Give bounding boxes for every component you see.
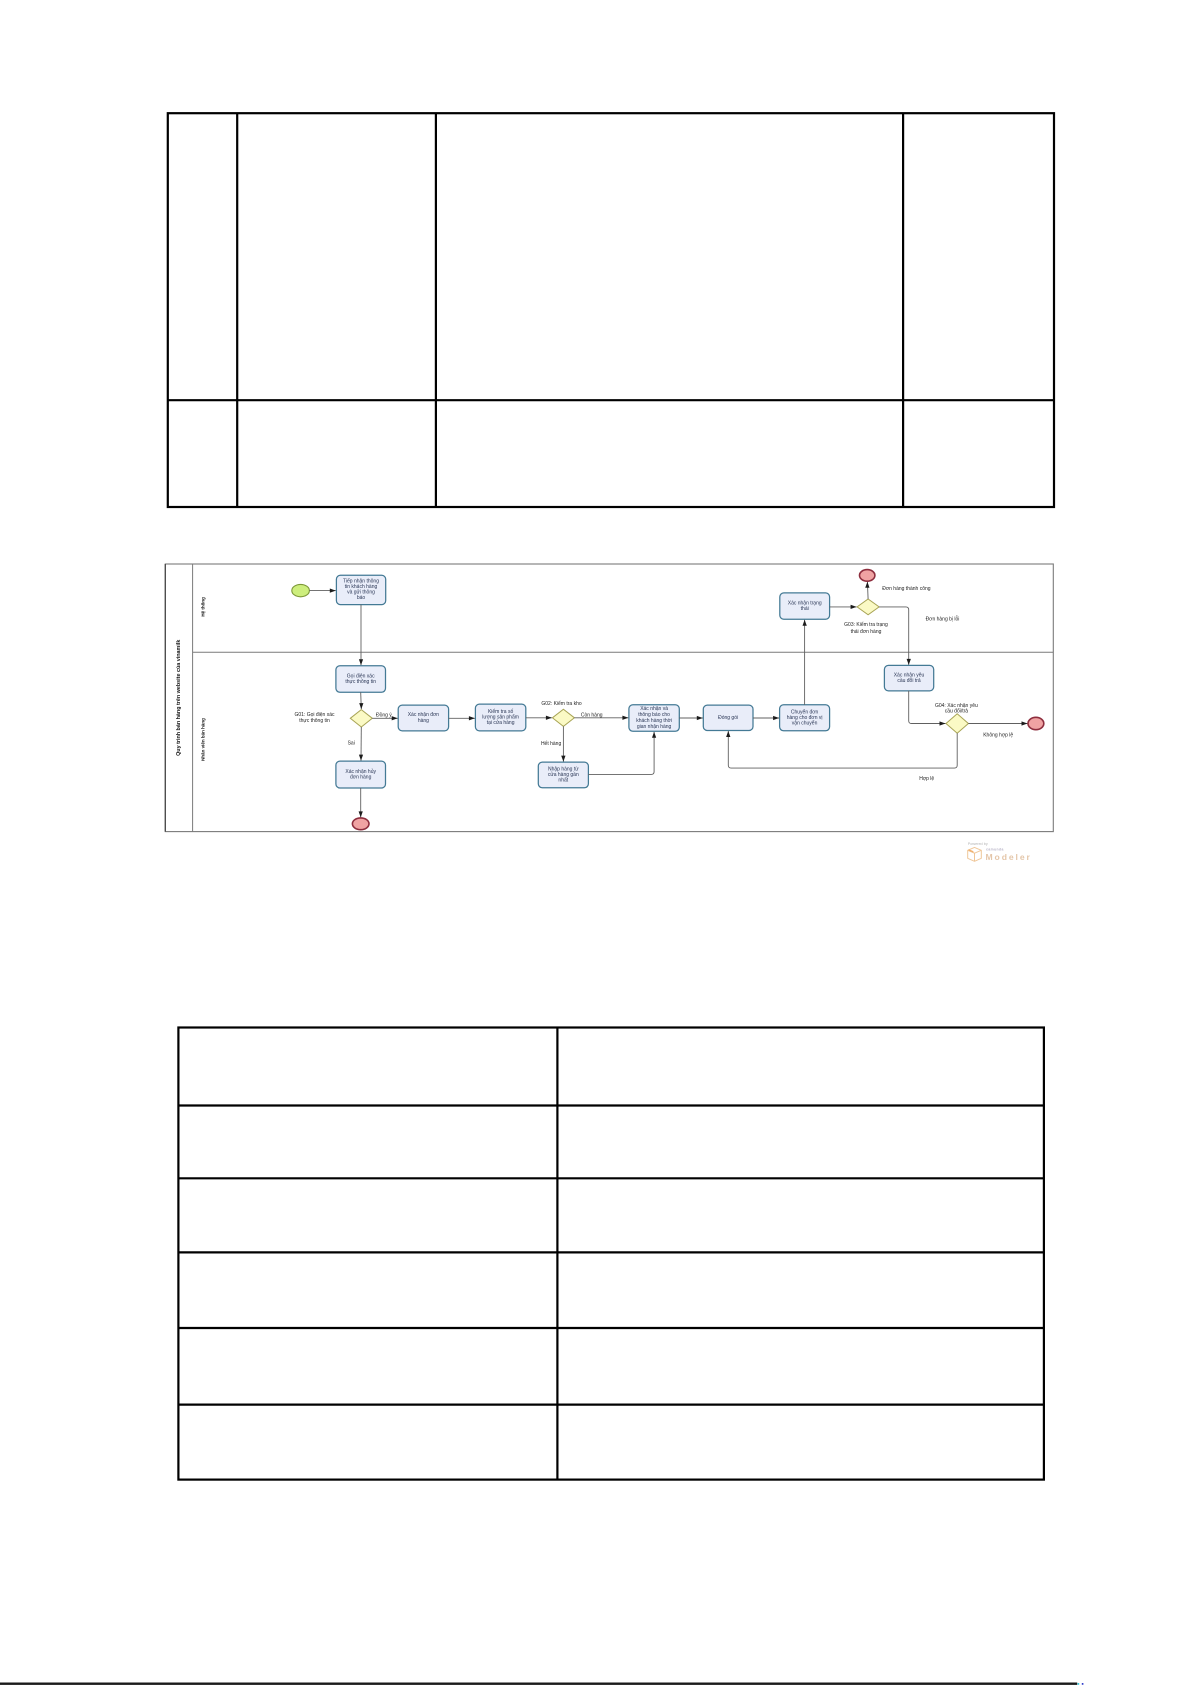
svg-text:Chuyển đơnhàng cho đơn vịvận c: Chuyển đơnhàng cho đơn vịvận chuyển bbox=[787, 708, 823, 726]
svg-text:Đơn hàng thành công: Đơn hàng thành công bbox=[882, 586, 931, 592]
svg-text:G04: Xác nhận yêucầu đổi/trả: G04: Xác nhận yêucầu đổi/trả bbox=[935, 703, 978, 715]
svg-text:Hợp lệ: Hợp lệ bbox=[919, 776, 934, 782]
svg-text:Quy trình bán hàng trên websit: Quy trình bán hàng trên website của vina… bbox=[176, 640, 182, 756]
svg-text:Powered by: Powered by bbox=[968, 842, 988, 846]
svg-text:G02: Kiểm tra kho: G02: Kiểm tra kho bbox=[541, 700, 582, 707]
svg-text:Nhân viên bán hàng: Nhân viên bán hàng bbox=[200, 718, 205, 761]
svg-text:G01: Gọi điện xácthực thông ti: G01: Gọi điện xácthực thông tin bbox=[294, 712, 335, 724]
svg-text:Đóng gói: Đóng gói bbox=[718, 715, 738, 721]
svg-text:Xác nhận yêucầu đổi trả: Xác nhận yêucầu đổi trả bbox=[894, 672, 925, 684]
svg-text:Gọi điện xácthực thông tin: Gọi điện xácthực thông tin bbox=[345, 673, 376, 685]
svg-text:Hệ thống: Hệ thống bbox=[199, 597, 205, 617]
svg-text:Không hợp lệ: Không hợp lệ bbox=[983, 732, 1013, 738]
svg-text:Hết hàng: Hết hàng bbox=[541, 741, 562, 747]
svg-text:Xác nhận vàthông báo chokhách: Xác nhận vàthông báo chokhách hàng thờig… bbox=[636, 706, 672, 730]
svg-text:Modeler: Modeler bbox=[986, 852, 1032, 862]
svg-text:G03: Kiểm tra trạngthái đơn hà: G03: Kiểm tra trạngthái đơn hàng bbox=[844, 621, 888, 635]
svg-text:Đồng ý: Đồng ý bbox=[376, 712, 392, 718]
svg-text:Đơn hàng bị lỗi: Đơn hàng bị lỗi bbox=[926, 616, 960, 623]
svg-text:Sai: Sai bbox=[348, 741, 355, 747]
